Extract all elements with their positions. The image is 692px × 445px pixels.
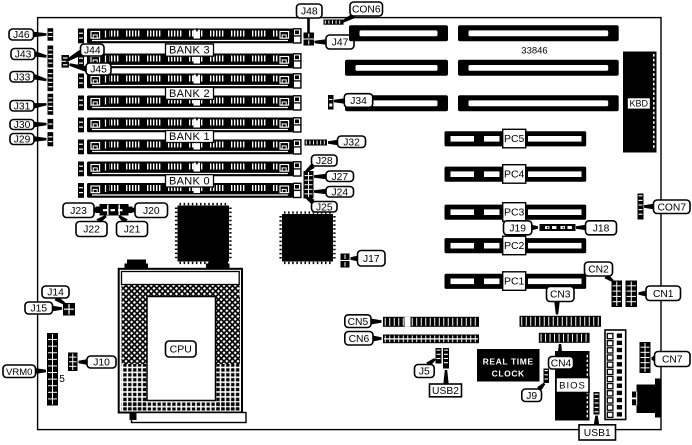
svg-text:VRM0: VRM0 [6, 367, 32, 378]
svg-text:CN3: CN3 [550, 290, 571, 301]
svg-text:J43: J43 [15, 50, 32, 61]
svg-text:CLOCK: CLOCK [492, 369, 525, 379]
svg-text:BANK 0: BANK 0 [169, 175, 210, 187]
svg-text:J14: J14 [47, 288, 64, 299]
svg-text:J33: J33 [14, 72, 31, 83]
svg-text:CN7: CN7 [662, 355, 683, 366]
svg-text:J18: J18 [593, 223, 610, 234]
svg-text:J30: J30 [14, 120, 31, 131]
svg-text:PC3: PC3 [504, 207, 525, 219]
svg-text:J45: J45 [90, 65, 107, 76]
svg-text:USB1: USB1 [584, 428, 611, 439]
svg-text:J17: J17 [363, 254, 380, 265]
svg-text:J31: J31 [14, 101, 31, 112]
svg-text:J48: J48 [301, 7, 318, 18]
svg-text:J20: J20 [143, 206, 160, 217]
svg-text:PC5: PC5 [504, 133, 525, 145]
svg-text:J22: J22 [83, 225, 100, 236]
svg-text:CN4: CN4 [551, 358, 572, 369]
svg-text:CON7: CON7 [657, 202, 686, 213]
svg-text:PC4: PC4 [504, 169, 525, 181]
svg-text:33846: 33846 [521, 46, 547, 57]
svg-text:J34: J34 [350, 96, 367, 107]
svg-text:KBD: KBD [630, 99, 649, 109]
svg-text:J10: J10 [93, 358, 110, 369]
svg-text:BANK 3: BANK 3 [169, 45, 210, 57]
svg-text:5: 5 [59, 374, 65, 385]
svg-text:J15: J15 [30, 304, 47, 315]
svg-text:J28: J28 [316, 156, 333, 167]
svg-text:CN2: CN2 [588, 265, 609, 276]
svg-text:J9: J9 [526, 391, 537, 402]
svg-text:J32: J32 [343, 137, 360, 148]
svg-text:REAL TIME: REAL TIME [483, 357, 534, 367]
svg-text:J47: J47 [332, 38, 349, 49]
svg-text:J44: J44 [84, 46, 101, 57]
svg-text:CN5: CN5 [348, 317, 369, 328]
svg-text:J19: J19 [509, 223, 526, 234]
svg-text:J25: J25 [316, 202, 333, 213]
svg-text:CN6: CN6 [349, 334, 370, 345]
svg-text:CN1: CN1 [653, 289, 674, 300]
svg-text:USB2: USB2 [432, 386, 459, 397]
svg-text:BIOS: BIOS [559, 381, 586, 392]
svg-text:PC2: PC2 [504, 240, 525, 252]
svg-text:CON6: CON6 [352, 5, 381, 16]
svg-text:BANK 2: BANK 2 [169, 88, 210, 100]
svg-text:J46: J46 [13, 30, 30, 41]
svg-text:PC1: PC1 [504, 276, 525, 288]
svg-text:BANK 1: BANK 1 [169, 131, 210, 143]
svg-text:J24: J24 [331, 187, 348, 198]
svg-text:J21: J21 [124, 225, 141, 236]
svg-text:CPU: CPU [170, 344, 192, 356]
svg-text:J23: J23 [70, 206, 87, 217]
svg-text:J29: J29 [14, 135, 31, 146]
svg-text:J27: J27 [331, 172, 348, 183]
svg-text:J5: J5 [419, 367, 430, 378]
